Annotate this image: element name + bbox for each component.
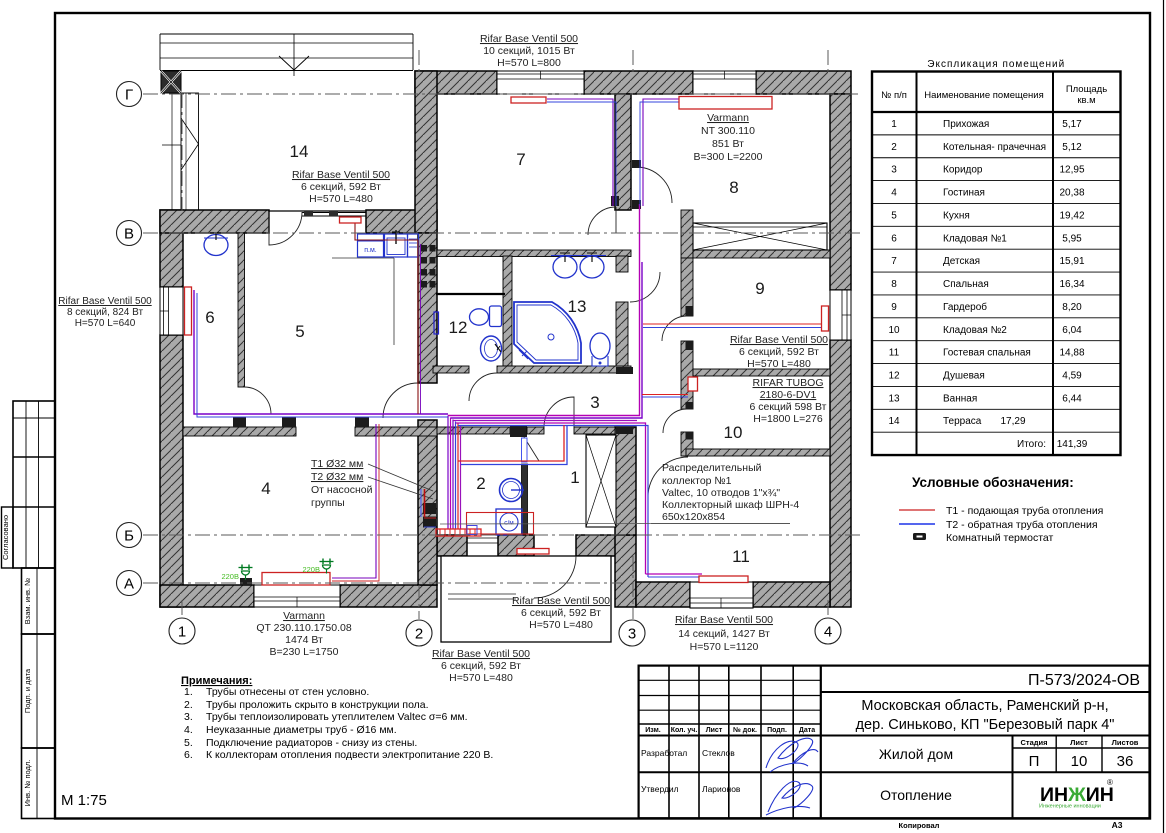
svg-text:220В: 220В <box>302 565 320 574</box>
svg-text:4: 4 <box>261 479 270 498</box>
svg-text:8: 8 <box>729 178 738 197</box>
svg-text:B=230 L=1750: B=230 L=1750 <box>270 646 339 658</box>
svg-text:8: 8 <box>891 279 897 290</box>
svg-text:Кол. уч.: Кол. уч. <box>671 727 698 734</box>
svg-text:Кладовая №1: Кладовая №1 <box>943 233 1007 244</box>
svg-text:П-573/2024-ОВ: П-573/2024-ОВ <box>1028 672 1140 689</box>
svg-text:В: В <box>124 226 134 243</box>
svg-text:4: 4 <box>891 188 897 199</box>
svg-text:с/м: с/м <box>504 520 514 527</box>
svg-text:14 секций, 1427 Вт: 14 секций, 1427 Вт <box>678 628 770 640</box>
svg-text:7: 7 <box>516 150 525 169</box>
svg-text:Rifar Base Ventil 500: Rifar Base Ventil 500 <box>292 169 390 181</box>
svg-text:RIFAR TUBOG: RIFAR TUBOG <box>753 377 824 389</box>
svg-text:Т2 - обратная труба отопления: Т2 - обратная труба отопления <box>946 519 1098 531</box>
svg-text:20,38: 20,38 <box>1059 188 1084 199</box>
svg-text:группы: группы <box>311 497 345 509</box>
svg-text:Гардероб: Гардероб <box>943 301 987 313</box>
svg-text:Н=570 L=1120: Н=570 L=1120 <box>690 641 759 653</box>
svg-text:Трубы отнесены от стен условно: Трубы отнесены от стен условно. <box>206 686 369 698</box>
svg-text:Согласовано: Согласовано <box>1 515 10 560</box>
svg-text:Т1 Ø32 мм: Т1 Ø32 мм <box>311 458 363 470</box>
svg-text:Взам. инв. №: Взам. инв. № <box>23 578 32 624</box>
svg-text:Детская: Детская <box>943 256 980 267</box>
svg-text:Rifar Base Ventil 500: Rifar Base Ventil 500 <box>480 33 578 45</box>
svg-text:6 секций, 592 Вт: 6 секций, 592 Вт <box>301 181 381 193</box>
svg-text:Экспликация помещений: Экспликация помещений <box>927 59 1065 70</box>
svg-text:12: 12 <box>888 371 900 382</box>
svg-text:Подп. и дата: Подп. и дата <box>23 668 32 713</box>
svg-text:Ванная: Ванная <box>943 393 977 404</box>
svg-text:3: 3 <box>590 393 599 412</box>
svg-text:6 секций, 592 Вт: 6 секций, 592 Вт <box>441 660 521 672</box>
svg-text:№ док.: № док. <box>733 726 757 734</box>
svg-text:Стеклов: Стеклов <box>702 748 735 758</box>
svg-text:3: 3 <box>628 626 636 643</box>
svg-text:Трубы проложить скрыто в конст: Трубы проложить скрыто в конструкции пол… <box>206 699 429 711</box>
svg-text:®: ® <box>1107 778 1113 787</box>
svg-text:Распределительный: Распределительный <box>662 462 762 474</box>
svg-text:36: 36 <box>1117 753 1134 770</box>
svg-text:П: П <box>1029 753 1040 770</box>
svg-text:9: 9 <box>755 279 764 298</box>
svg-text:1.: 1. <box>184 686 193 698</box>
svg-text:Терраса: Терраса <box>943 416 982 427</box>
svg-text:QT 230.110.1750.08: QT 230.110.1750.08 <box>256 622 352 634</box>
svg-text:От насосной: От насосной <box>311 484 373 496</box>
svg-text:Подп.: Подп. <box>767 727 787 734</box>
svg-text:13: 13 <box>888 393 900 404</box>
svg-text:5,12: 5,12 <box>1062 142 1082 153</box>
svg-text:2.: 2. <box>184 699 193 711</box>
svg-text:Московская область, Раменский: Московская область, Раменский р-н, <box>861 698 1108 714</box>
svg-text:6 секций, 592 Вт: 6 секций, 592 Вт <box>739 346 819 358</box>
svg-text:Копировал: Копировал <box>899 821 940 830</box>
svg-text:2180-6-DV1: 2180-6-DV1 <box>760 389 817 401</box>
svg-text:Отопление: Отопление <box>880 787 952 803</box>
svg-text:Н=570 L=480: Н=570 L=480 <box>747 358 811 370</box>
svg-text:Инженерные инновации: Инженерные инновации <box>1039 804 1101 810</box>
svg-text:Rifar Base Ventil 500: Rifar Base Ventil 500 <box>675 614 773 626</box>
svg-text:Спальная: Спальная <box>943 279 989 290</box>
svg-text:Комнатный термостат: Комнатный термостат <box>946 532 1053 544</box>
svg-text:Лист: Лист <box>1070 738 1088 747</box>
svg-text:16,34: 16,34 <box>1059 279 1084 290</box>
svg-text:Инв. № подл.: Инв. № подл. <box>23 760 32 807</box>
svg-text:Н=1800 L=276: Н=1800 L=276 <box>753 413 823 425</box>
svg-text:2: 2 <box>415 626 423 643</box>
svg-text:Б: Б <box>124 528 134 545</box>
svg-text:2: 2 <box>476 474 485 493</box>
svg-text:кв.м: кв.м <box>1077 95 1095 106</box>
svg-text:6,04: 6,04 <box>1062 325 1082 336</box>
svg-text:Коридор: Коридор <box>943 165 983 176</box>
svg-text:Жилой дом: Жилой дом <box>879 746 953 762</box>
svg-text:А3: А3 <box>1112 820 1123 830</box>
svg-text:NT 300.110: NT 300.110 <box>701 125 755 137</box>
svg-text:141,39: 141,39 <box>1057 439 1088 450</box>
svg-text:Rifar Base Ventil 500: Rifar Base Ventil 500 <box>730 334 828 346</box>
svg-text:10 секций, 1015 Вт: 10 секций, 1015 Вт <box>483 45 575 57</box>
svg-text:Котельная- прачечная: Котельная- прачечная <box>943 142 1046 153</box>
svg-text:1474 Вт: 1474 Вт <box>285 634 323 646</box>
svg-text:3: 3 <box>891 165 897 176</box>
svg-text:Rifar Base Ventil 500: Rifar Base Ventil 500 <box>512 595 610 607</box>
svg-text:Прихожая: Прихожая <box>943 119 989 130</box>
svg-text:Душевая: Душевая <box>943 371 985 382</box>
svg-text:Varmann: Varmann <box>283 610 325 622</box>
svg-text:220В: 220В <box>221 572 239 581</box>
svg-text:Стадия: Стадия <box>1020 738 1047 747</box>
svg-text:М 1:75: М 1:75 <box>61 792 107 809</box>
svg-text:Разработал: Разработал <box>641 748 687 758</box>
svg-text:Кладовая №2: Кладовая №2 <box>943 325 1007 336</box>
svg-text:К коллекторам отопления подвес: К коллекторам отопления подвести электро… <box>206 749 493 761</box>
svg-text:6: 6 <box>891 233 897 244</box>
svg-text:Rifar Base Ventil 500: Rifar Base Ventil 500 <box>432 648 530 660</box>
svg-text:12: 12 <box>449 318 468 337</box>
svg-text:Varmann: Varmann <box>707 112 749 124</box>
svg-text:10: 10 <box>1071 753 1088 770</box>
svg-text:5,95: 5,95 <box>1062 233 1082 244</box>
svg-text:851 Вт: 851 Вт <box>712 138 744 150</box>
svg-text:9: 9 <box>891 302 897 313</box>
svg-text:Н=570 L=800: Н=570 L=800 <box>497 57 561 69</box>
svg-text:19,42: 19,42 <box>1059 210 1084 221</box>
svg-text:Т2 Ø32 мм: Т2 Ø32 мм <box>311 471 363 483</box>
svg-text:Неуказанные диаметры труб - Ø1: Неуказанные диаметры труб - Ø16 мм. <box>206 724 397 736</box>
svg-text:6: 6 <box>205 308 214 327</box>
svg-text:Условные обозначения:: Условные обозначения: <box>912 475 1074 490</box>
svg-text:14: 14 <box>888 416 900 427</box>
svg-text:4,59: 4,59 <box>1062 371 1082 382</box>
svg-text:11: 11 <box>732 547 750 566</box>
svg-text:5,17: 5,17 <box>1062 119 1082 130</box>
svg-text:10: 10 <box>888 325 900 336</box>
svg-text:Т1 - подающая труба отопления: Т1 - подающая труба отопления <box>946 505 1103 517</box>
svg-text:8 секций, 824 Вт: 8 секций, 824 Вт <box>67 307 144 318</box>
svg-text:11: 11 <box>889 348 900 359</box>
svg-text:12,95: 12,95 <box>1059 165 1084 176</box>
svg-text:коллектор №1: коллектор №1 <box>662 475 732 487</box>
svg-text:Н=570 L=480: Н=570 L=480 <box>529 619 593 631</box>
svg-text:15,91: 15,91 <box>1059 256 1084 267</box>
svg-text:14,88: 14,88 <box>1059 348 1084 359</box>
svg-text:13: 13 <box>568 297 587 316</box>
svg-text:Н=570 L=480: Н=570 L=480 <box>309 193 373 205</box>
svg-text:п.м.: п.м. <box>364 247 377 254</box>
svg-text:4.: 4. <box>184 724 193 736</box>
svg-text:10: 10 <box>724 423 743 442</box>
svg-text:5: 5 <box>891 210 897 221</box>
svg-text:Лист: Лист <box>706 727 723 734</box>
svg-text:Rifar Base Ventil 500: Rifar Base Ventil 500 <box>58 296 152 307</box>
svg-text:Гостиная: Гостиная <box>943 188 985 199</box>
svg-text:1: 1 <box>891 119 897 130</box>
svg-text:8,20: 8,20 <box>1062 302 1082 313</box>
svg-text:Дата: Дата <box>799 727 815 734</box>
svg-text:5: 5 <box>295 322 304 341</box>
svg-text:дер. Синьково, КП "Березовый п: дер. Синьково, КП "Березовый парк 4" <box>856 717 1115 733</box>
svg-text:1: 1 <box>178 624 186 641</box>
svg-text:Итого:: Итого: <box>1017 439 1046 450</box>
svg-text:Гостевая спальная: Гостевая спальная <box>943 348 1031 359</box>
svg-text:№ п/п: № п/п <box>881 90 907 101</box>
svg-text:Подключение радиаторов - снизу: Подключение радиаторов - снизу из стены. <box>206 737 417 749</box>
svg-text:5.: 5. <box>184 737 193 749</box>
svg-text:14: 14 <box>290 142 309 161</box>
svg-text:Кухня: Кухня <box>943 210 970 221</box>
svg-text:Утвердил: Утвердил <box>641 784 679 794</box>
svg-text:17,29: 17,29 <box>1000 416 1025 427</box>
svg-text:Трубы теплоизолировать утеплит: Трубы теплоизолировать утеплителем Valte… <box>206 711 468 723</box>
svg-text:6 секций, 592 Вт: 6 секций, 592 Вт <box>521 607 601 619</box>
svg-text:650х120х854: 650х120х854 <box>662 511 725 523</box>
svg-text:Ларионов: Ларионов <box>702 784 741 794</box>
svg-text:Н=570 L=640: Н=570 L=640 <box>75 318 136 329</box>
svg-text:4: 4 <box>824 624 832 641</box>
svg-text:Г: Г <box>125 87 133 104</box>
svg-text:Наименование помещения: Наименование помещения <box>924 90 1043 101</box>
svg-text:7: 7 <box>891 256 897 267</box>
svg-text:Листов: Листов <box>1112 738 1139 747</box>
svg-text:6.: 6. <box>184 749 193 761</box>
svg-text:Н=570 L=480: Н=570 L=480 <box>449 672 513 684</box>
svg-text:2: 2 <box>891 142 897 153</box>
svg-text:3.: 3. <box>184 711 193 723</box>
svg-text:Коллекторный шкаф ШРН-4: Коллекторный шкаф ШРН-4 <box>662 499 799 511</box>
svg-text:Valtec, 10 отводов 1"х¾": Valtec, 10 отводов 1"х¾" <box>662 487 780 499</box>
svg-text:А: А <box>124 576 134 593</box>
svg-text:1: 1 <box>570 468 579 487</box>
svg-text:Площадь: Площадь <box>1066 84 1107 95</box>
svg-text:Изм.: Изм. <box>645 727 661 734</box>
svg-text:6 секций 598 Вт: 6 секций 598 Вт <box>749 401 826 413</box>
svg-text:6,44: 6,44 <box>1062 393 1082 404</box>
svg-text:B=300 L=2200: B=300 L=2200 <box>694 151 763 163</box>
